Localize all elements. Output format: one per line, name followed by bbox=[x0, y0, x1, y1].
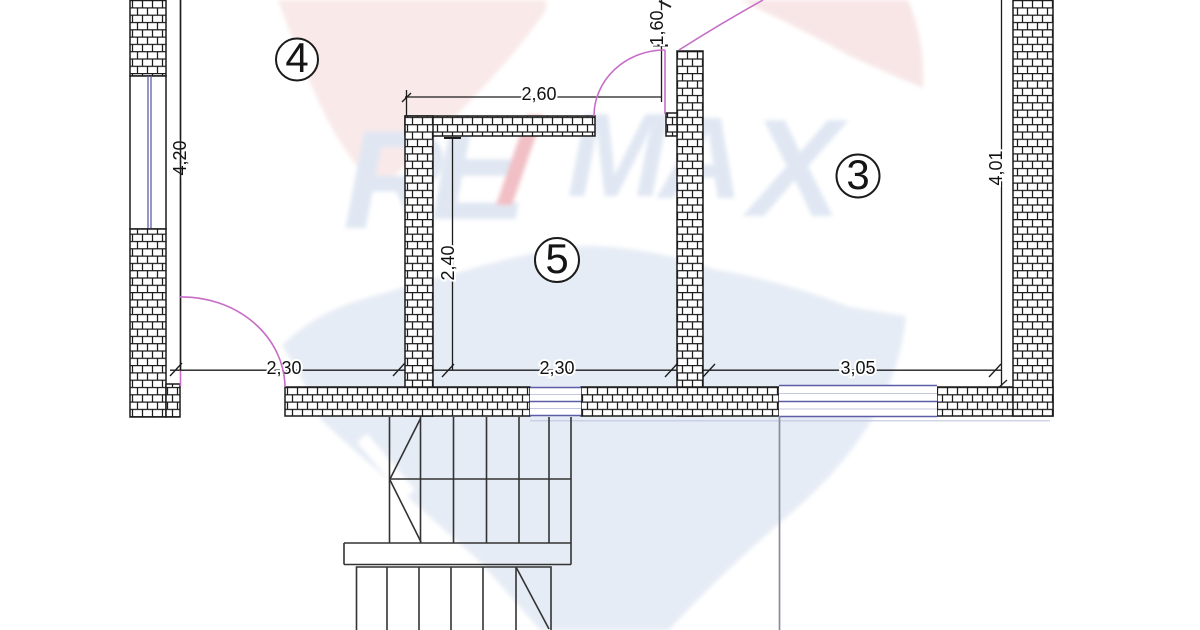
svg-text:2,40: 2,40 bbox=[438, 245, 458, 280]
svg-text:3,05: 3,05 bbox=[840, 358, 875, 378]
svg-text:X: X bbox=[742, 91, 849, 246]
svg-text:3: 3 bbox=[846, 151, 869, 198]
svg-text:5: 5 bbox=[545, 235, 568, 282]
svg-text:2,60: 2,60 bbox=[521, 84, 556, 104]
svg-text:4,01: 4,01 bbox=[986, 150, 1006, 185]
svg-text:2,30: 2,30 bbox=[539, 358, 574, 378]
svg-text:M: M bbox=[567, 89, 669, 222]
svg-text:1,60: 1,60 bbox=[647, 10, 667, 45]
svg-text:4: 4 bbox=[285, 34, 308, 81]
